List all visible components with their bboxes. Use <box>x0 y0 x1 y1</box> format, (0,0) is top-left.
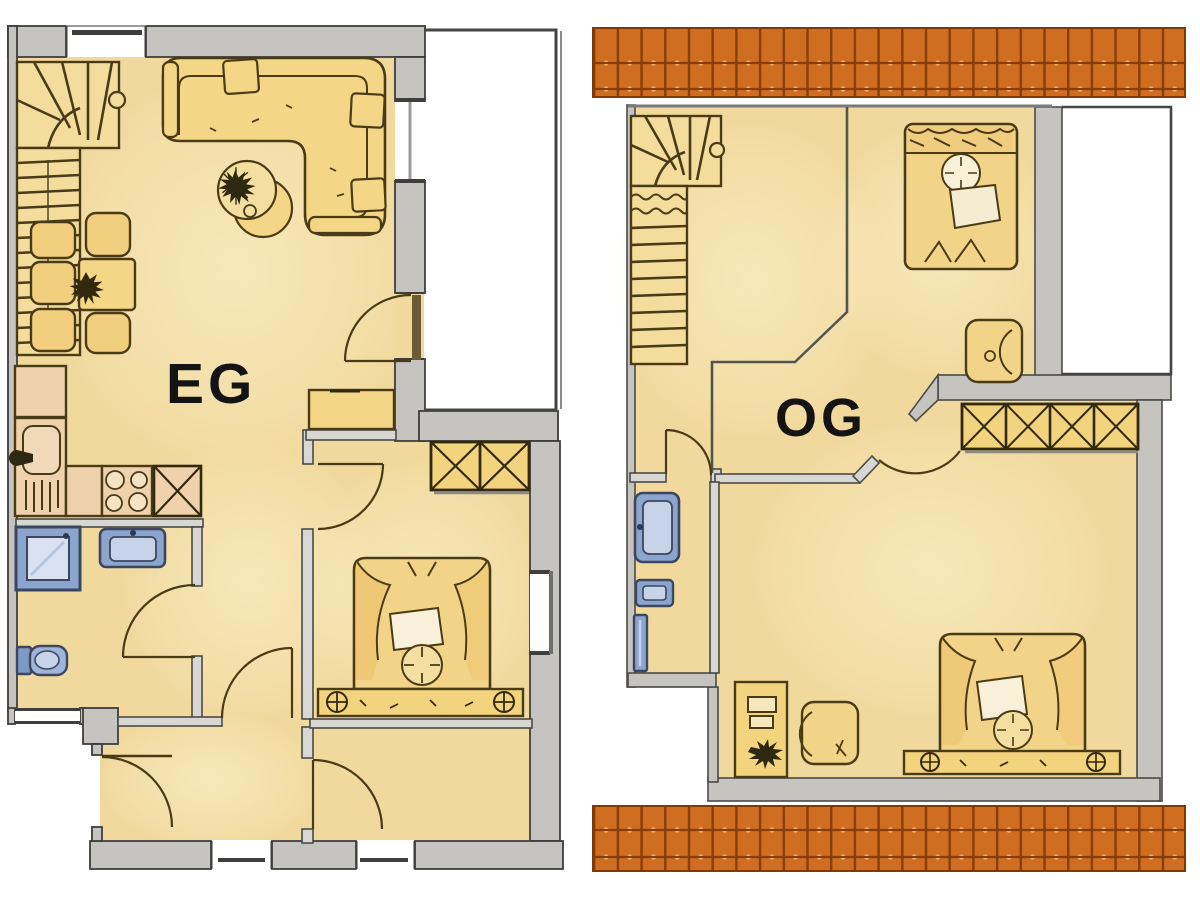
svg-text:EG: EG <box>166 352 256 416</box>
svg-text:OG: OG <box>775 388 867 448</box>
